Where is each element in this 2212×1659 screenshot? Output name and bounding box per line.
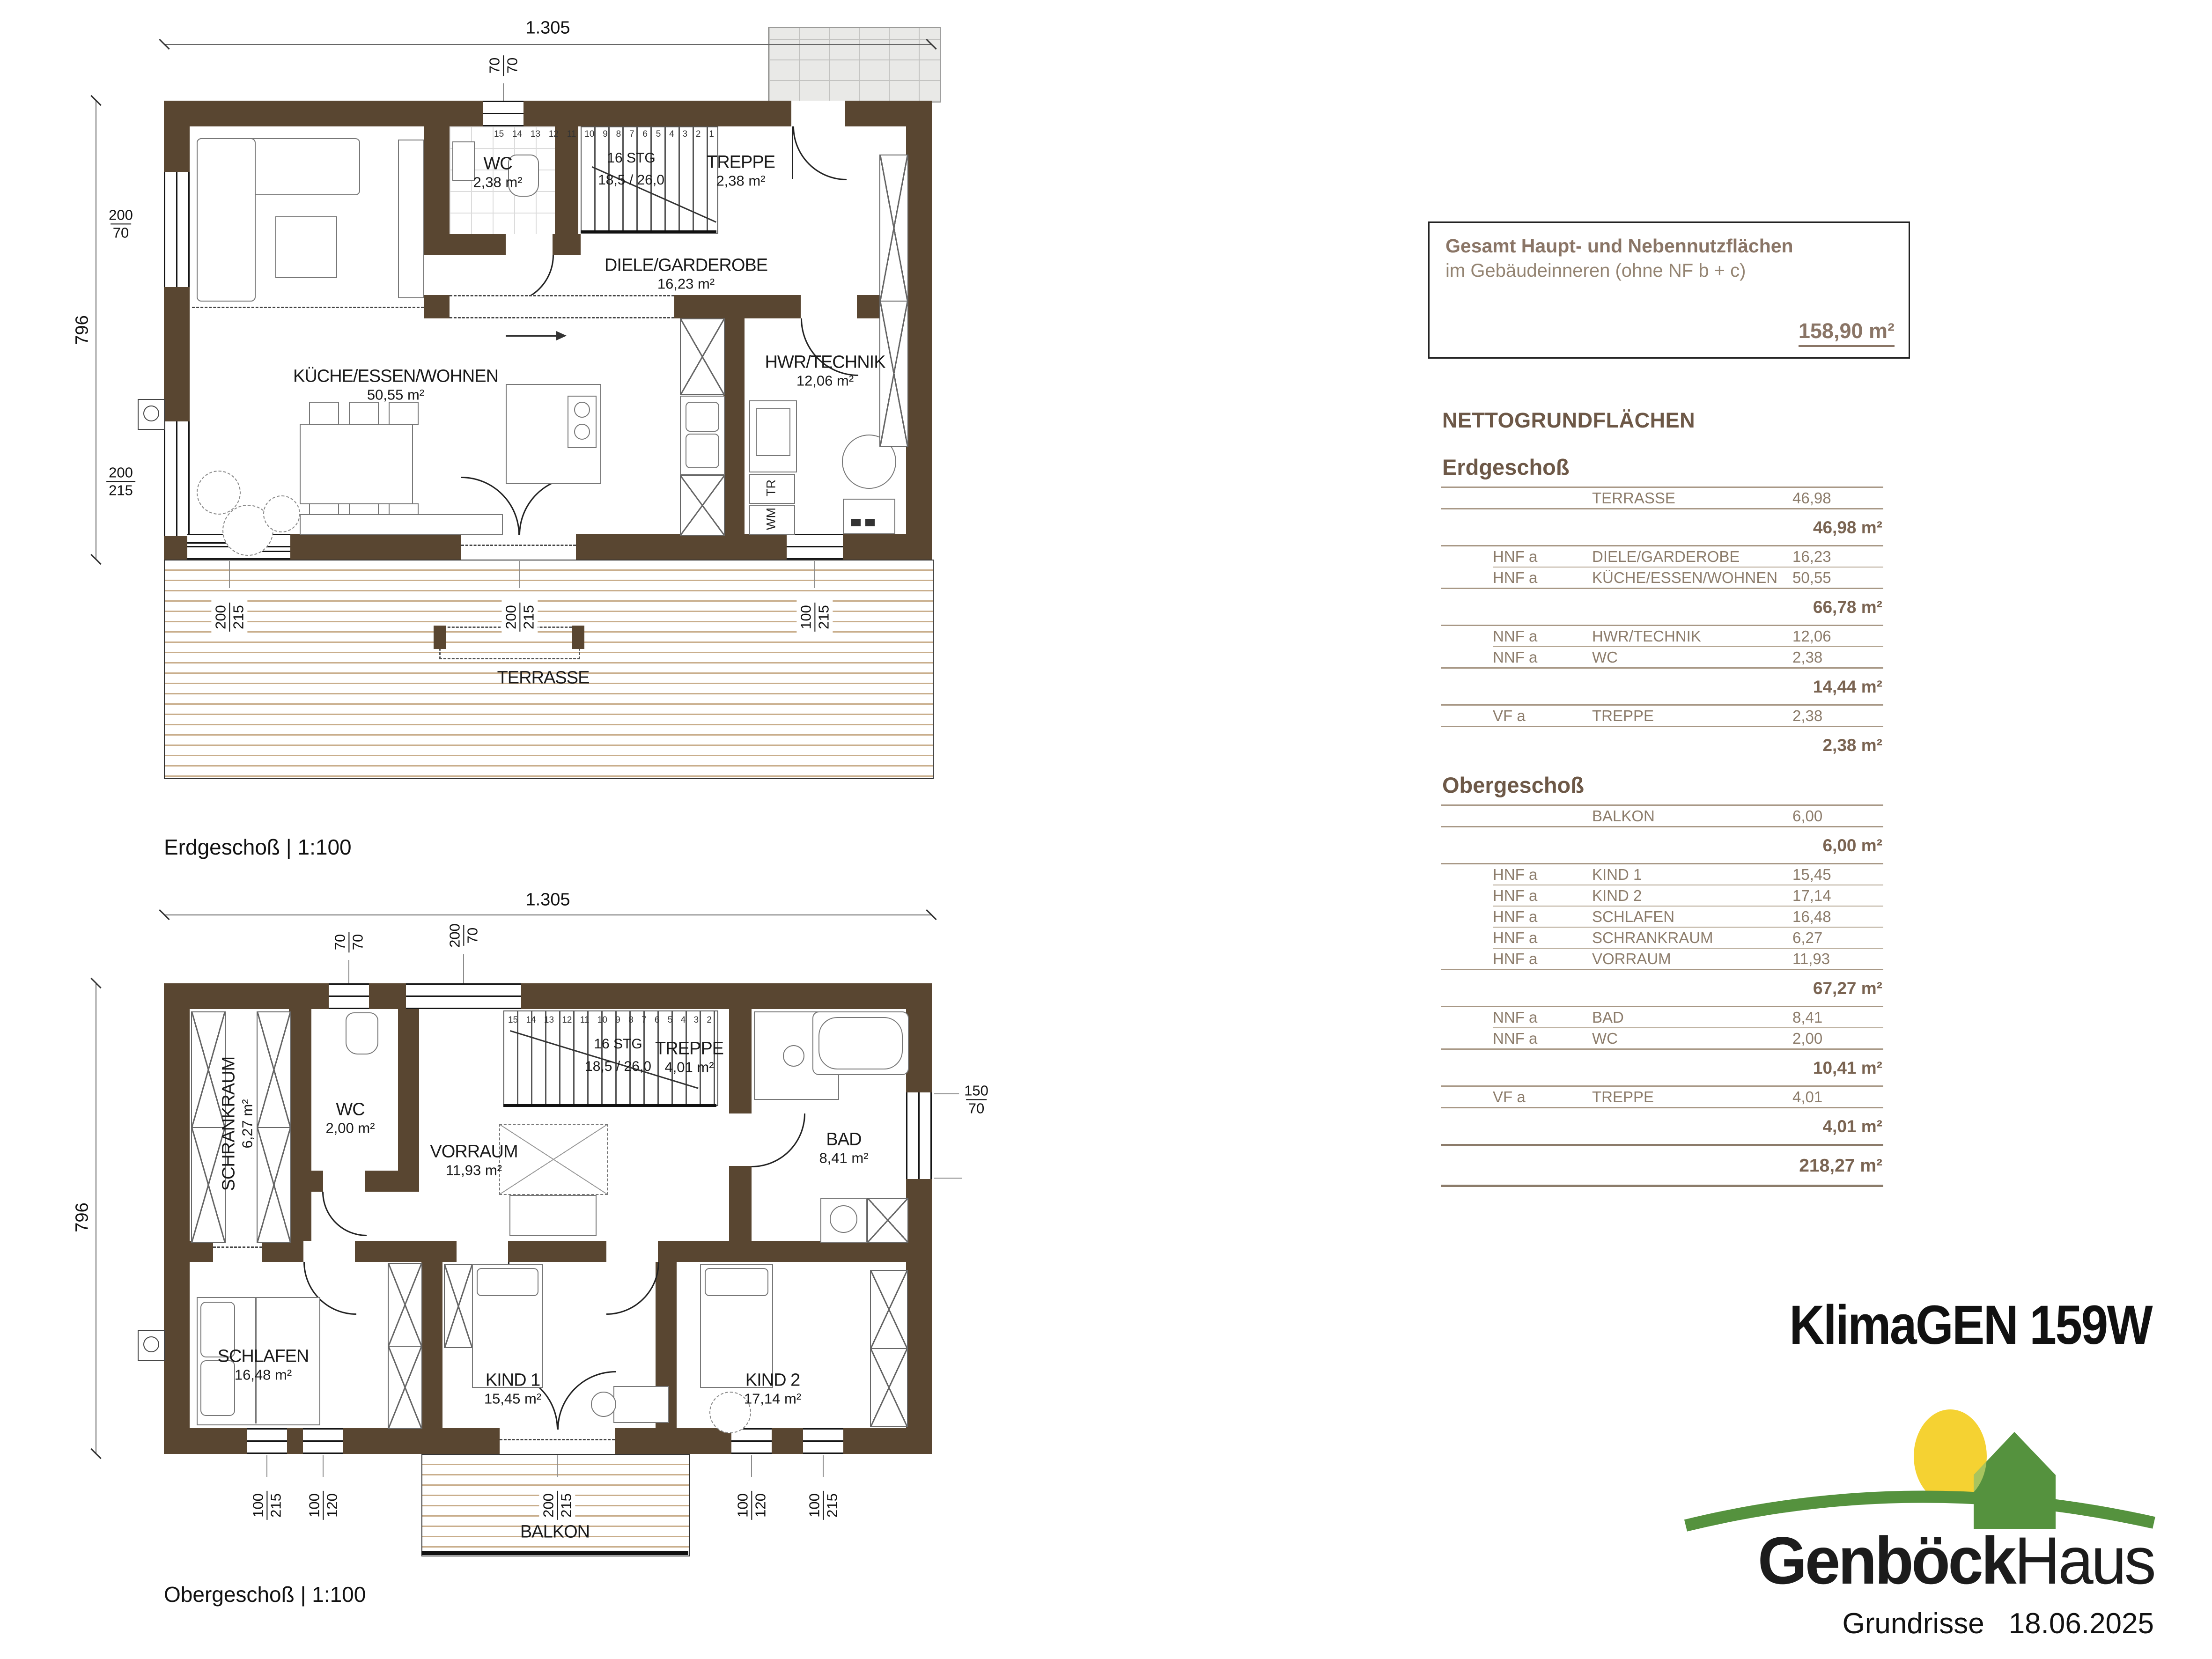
row-category: HNF a <box>1493 864 1592 885</box>
vent <box>851 519 861 526</box>
summary-subtitle: im Gebäudeinneren (ohne NF b + c) <box>1445 260 1746 281</box>
chair <box>309 402 339 425</box>
chest <box>509 1195 597 1236</box>
terrace-post <box>434 626 446 649</box>
room-label-kueche: KÜCHE/ESSEN/WOHNEN50,55 m² <box>293 367 498 404</box>
table-row: VF aTREPPE2,38 <box>1441 706 1883 726</box>
dim-leader <box>557 1455 558 1477</box>
entrance-door-leaf <box>792 126 793 179</box>
door-gap <box>729 1113 752 1166</box>
window <box>303 1428 343 1454</box>
window <box>329 983 369 1009</box>
group-subtotal: 14,44 m² <box>1441 669 1883 704</box>
row-value: 2,00 <box>1792 1028 1883 1048</box>
group-subtotal: 10,41 m² <box>1441 1050 1883 1085</box>
room-label-schrankraum: SCHRANKRAUM6,27 m² <box>219 1057 256 1191</box>
row-indent <box>1441 568 1493 588</box>
row-indent <box>1441 806 1493 826</box>
room-label-treppe: TREPPE2,38 m² <box>707 153 775 190</box>
row-value: 6,27 <box>1792 928 1883 948</box>
table-row: HNF aKIND 115,45 <box>1441 864 1883 885</box>
row-room: KÜCHE/ESSEN/WOHNEN <box>1592 568 1792 588</box>
desk <box>613 1386 669 1423</box>
group-subtotal: 66,78 m² <box>1441 589 1883 625</box>
pillow <box>477 1268 538 1296</box>
balcony-rail <box>421 1551 688 1555</box>
floor-caption-eg: Erdgeschoß | 1:100 <box>164 834 352 860</box>
stair-step-number: 13 <box>531 129 540 140</box>
row-indent <box>1441 488 1493 508</box>
doc-line: Grundrisse 18.06.2025 <box>1648 1607 2154 1640</box>
dim-leader <box>934 1178 962 1179</box>
grand-total: 218,27 m² <box>1441 1146 1883 1185</box>
table-row: NNF aWC2,00 <box>1441 1028 1883 1048</box>
toilet <box>346 1012 378 1054</box>
wall-segment <box>674 295 801 318</box>
table-row: TERRASSE46,98 <box>1441 488 1883 508</box>
dim-height: 796 <box>73 1196 93 1239</box>
row-category: VF a <box>1493 1087 1592 1107</box>
lintel-dashed <box>213 1246 262 1248</box>
table-row: NNF aBAD8,41 <box>1441 1007 1883 1027</box>
tech-unit <box>843 499 895 534</box>
window <box>164 421 190 536</box>
room-label-kind2: KIND 217,14 m² <box>744 1371 801 1408</box>
door-gap <box>213 1241 262 1262</box>
areas-table-body: ErdgeschoßTERRASSE46,9846,98 m²HNF aDIEL… <box>1441 454 1883 1187</box>
stair-step-number: 14 <box>512 129 522 140</box>
dim-line <box>96 983 96 1454</box>
row-value: 4,01 <box>1792 1087 1883 1107</box>
obergeschoss-plan: 15141312111098765432 <box>0 890 1030 1659</box>
beam-dashed <box>192 307 424 308</box>
summary-total: 158,90 m² <box>1799 319 1895 347</box>
wardrobe <box>388 1263 422 1347</box>
row-category: HNF a <box>1493 568 1592 588</box>
areas-section-heading: Erdgeschoß <box>1442 454 1883 480</box>
wall-segment <box>723 318 745 534</box>
logo-hill <box>1686 1497 2154 1526</box>
stair-step-numbers: 15141312111098765432 <box>508 1015 712 1025</box>
lintel-dashed <box>450 295 674 296</box>
dim-window: 15070 <box>959 1081 994 1117</box>
table-row: NNF aWC2,38 <box>1441 647 1883 667</box>
stair-step-number: 15 <box>508 1015 518 1025</box>
row-value: 15,45 <box>1792 864 1883 885</box>
areas-table-title: NETTOGRUNDFLÄCHEN <box>1442 408 1883 433</box>
stair-step-number: 13 <box>544 1015 554 1025</box>
row-indent <box>1441 626 1493 646</box>
stair-riser-label: 18,5 / 26,0 <box>598 172 664 188</box>
areas-table: NETTOGRUNDFLÄCHEN ErdgeschoßTERRASSE46,9… <box>1441 408 1883 1187</box>
kitchen-cabinet <box>680 318 725 395</box>
model-title: KlimaGEN 159W <box>1700 1293 2152 1357</box>
table-rule-thick <box>1441 1185 1883 1187</box>
door-gap <box>457 1241 508 1262</box>
row-indent <box>1441 949 1493 969</box>
row-category: NNF a <box>1493 626 1592 646</box>
hob-burner <box>574 424 590 440</box>
dim-window: 7070 <box>485 52 521 79</box>
vent <box>865 519 875 526</box>
row-category: NNF a <box>1493 1028 1592 1048</box>
table-row: HNF aKIND 217,14 <box>1441 885 1883 906</box>
wall-segment <box>658 1241 906 1262</box>
row-room: HWR/TECHNIK <box>1592 626 1792 646</box>
row-value: 16,48 <box>1792 907 1883 927</box>
balcony-label: BALKON <box>520 1522 590 1542</box>
row-value: 17,14 <box>1792 885 1883 906</box>
wardrobe <box>879 155 908 302</box>
terrace-label: TERRASSE <box>497 668 590 688</box>
pillow <box>705 1268 768 1296</box>
stair-step-number: 8 <box>628 1015 634 1025</box>
row-room: TERRASSE <box>1592 488 1792 508</box>
row-room: TREPPE <box>1592 1087 1792 1107</box>
row-value: 2,38 <box>1792 706 1883 726</box>
dining-table <box>300 424 413 504</box>
wc-sink <box>452 141 475 181</box>
row-room: SCHLAFEN <box>1592 907 1792 927</box>
terrace-post <box>572 626 584 649</box>
dim-leader <box>323 1455 324 1477</box>
room-label-diele: DIELE/GARDEROBE16,23 m² <box>605 256 767 293</box>
stair-step-number: 6 <box>655 1015 660 1025</box>
tv-sideboard <box>300 514 503 535</box>
dryer-label: TR <box>764 479 779 496</box>
dim-line <box>164 914 932 915</box>
open-passage <box>450 295 674 318</box>
dim-leader <box>229 561 230 588</box>
wall-segment <box>421 1262 442 1428</box>
dim-line <box>96 101 96 560</box>
stair-step-number: 15 <box>494 129 504 140</box>
dim-width: 1.305 <box>519 18 576 38</box>
flow-arrow <box>506 335 557 337</box>
group-subtotal: 67,27 m² <box>1441 970 1883 1006</box>
entrance-door-gap <box>791 101 845 126</box>
row-value: 2,38 <box>1792 647 1883 667</box>
stair-step-number: 11 <box>567 129 576 140</box>
wall-segment <box>164 983 190 1454</box>
table-row: VF aTREPPE4,01 <box>1441 1087 1883 1107</box>
door-sill <box>461 545 576 546</box>
coffee-table <box>275 216 337 278</box>
row-indent <box>1441 885 1493 906</box>
door-arc <box>606 1262 659 1315</box>
stair-rail <box>581 230 716 233</box>
plant <box>197 471 241 515</box>
row-category: VF a <box>1493 706 1592 726</box>
dim-leader <box>503 83 504 101</box>
door-arc <box>752 1113 805 1167</box>
flow-arrow-head <box>556 331 567 340</box>
dim-opening: 100120 <box>305 1488 341 1523</box>
dim-line <box>164 44 932 45</box>
wall-segment <box>729 1009 752 1113</box>
window <box>483 101 524 126</box>
wardrobe <box>388 1346 422 1429</box>
group-subtotal: 2,38 m² <box>1441 727 1883 763</box>
row-value: 46,98 <box>1792 488 1883 508</box>
dim-leader <box>348 960 349 983</box>
row-indent <box>1441 706 1493 726</box>
table-row: HNF aKÜCHE/ESSEN/WOHNEN50,55 <box>1441 568 1883 588</box>
closet <box>257 1011 291 1128</box>
group-subtotal: 4,01 m² <box>1441 1108 1883 1144</box>
summary-box: Gesamt Haupt- und Nebennutzflächen im Ge… <box>1428 221 1910 359</box>
wardrobe <box>870 1270 908 1349</box>
stair-riser-label: 18,5 / 26,0 <box>585 1059 651 1075</box>
wall-segment <box>365 1171 398 1192</box>
row-room: KIND 2 <box>1592 885 1792 906</box>
table-row: NNF aHWR/TECHNIK12,06 <box>1441 626 1883 646</box>
stair-step-number: 7 <box>629 129 634 140</box>
terrace-door <box>787 534 843 560</box>
sink-bowl <box>686 434 719 468</box>
dim-leader <box>814 561 815 588</box>
row-value: 12,06 <box>1792 626 1883 646</box>
brand-bold: Genböck <box>1758 1524 2014 1598</box>
bathtub-inner <box>818 1017 903 1069</box>
row-room: BAD <box>1592 1007 1792 1027</box>
room-label-treppe: TREPPE4,01 m² <box>655 1039 723 1076</box>
row-category: HNF a <box>1493 928 1592 948</box>
row-category: HNF a <box>1493 949 1592 969</box>
row-indent <box>1441 647 1493 667</box>
window <box>164 172 190 287</box>
dim-opening: 100120 <box>733 1488 769 1523</box>
stair-step-number: 2 <box>696 129 701 140</box>
stair-step-number: 6 <box>642 129 648 140</box>
lintel-dashed <box>450 317 674 318</box>
wall-segment <box>906 101 932 560</box>
dim-window: 7070 <box>331 929 367 955</box>
table-row: HNF aSCHRANKRAUM6,27 <box>1441 928 1883 948</box>
door-gap <box>303 1241 355 1262</box>
chair <box>591 1392 616 1417</box>
room-label-kind1: KIND 115,45 m² <box>484 1371 541 1408</box>
brand-light: Haus <box>2014 1524 2154 1598</box>
room-label-bad: BAD8,41 m² <box>819 1130 868 1167</box>
bath-sink-bowl <box>830 1205 857 1233</box>
hwr-door-gap <box>801 295 857 318</box>
summary-title: Gesamt Haupt- und Nebennutzflächen <box>1445 235 1793 257</box>
stair-step-number: 9 <box>615 1015 620 1025</box>
entrance-paving <box>768 27 941 103</box>
stair-step-numbers: 151413121110987654321 <box>494 129 714 140</box>
stair-step-number: 7 <box>641 1015 647 1025</box>
row-indent <box>1441 1028 1493 1048</box>
row-room: SCHRANKRAUM <box>1592 928 1792 948</box>
door-gap <box>606 1241 658 1262</box>
row-room: BALKON <box>1592 806 1792 826</box>
doc-type: Grundrisse <box>1842 1607 1984 1640</box>
stair-step-number: 1 <box>709 129 714 140</box>
dim-opening: 200215 <box>211 600 247 634</box>
table-row: BALKON6,00 <box>1441 806 1883 826</box>
stair-step-number: 11 <box>580 1015 590 1025</box>
dim-opening: 100215 <box>796 600 833 634</box>
wardrobe <box>870 1348 908 1427</box>
hwr-sink-bowl <box>756 408 790 456</box>
row-value: 8,41 <box>1792 1007 1883 1027</box>
stair-stg-label: 16 STG <box>594 1036 642 1052</box>
floor-caption-og: Obergeschoß | 1:100 <box>164 1582 366 1607</box>
dim-window: 20070 <box>445 918 481 953</box>
closet <box>257 1127 291 1243</box>
wardrobe <box>444 1264 473 1348</box>
window <box>406 983 521 1009</box>
room-label-schlafen: SCHLAFEN16,48 m² <box>218 1347 309 1384</box>
row-value: 50,55 <box>1792 568 1883 588</box>
dim-opening: 100215 <box>249 1488 285 1523</box>
row-indent <box>1441 1007 1493 1027</box>
group-subtotal: 46,98 m² <box>1441 509 1883 545</box>
chimney-flue <box>143 406 159 421</box>
stair-step-number: 5 <box>668 1015 673 1025</box>
stair-step-number: 10 <box>584 129 594 140</box>
row-indent <box>1441 546 1493 567</box>
row-room: WC <box>1592 1028 1792 1048</box>
stair-step-number: 12 <box>549 129 559 140</box>
wall-segment <box>164 983 932 1009</box>
window <box>247 1428 287 1454</box>
row-indent <box>1441 907 1493 927</box>
stair-stg-label: 16 STG <box>607 150 655 166</box>
sideboard <box>398 140 424 298</box>
group-subtotal: 6,00 m² <box>1441 827 1883 863</box>
table-row: HNF aSCHLAFEN16,48 <box>1441 907 1883 927</box>
dim-leader <box>519 561 520 588</box>
plant <box>263 495 300 532</box>
wall-segment <box>424 295 450 318</box>
chimney-flue <box>143 1336 159 1352</box>
row-category: HNF a <box>1493 546 1592 567</box>
chair <box>389 402 419 425</box>
row-room: DIELE/GARDEROBE <box>1592 546 1792 567</box>
stair-step-number: 5 <box>656 129 661 140</box>
sink-bowl <box>686 402 719 432</box>
stair-step-number: 14 <box>526 1015 536 1025</box>
wall-segment <box>398 1009 419 1192</box>
dim-leader <box>751 1455 752 1477</box>
wc-door-gap <box>506 234 553 255</box>
wall-segment <box>906 983 932 1454</box>
stair-step-number: 9 <box>603 129 608 140</box>
room-label-hwr: HWR/TECHNIK12,06 m² <box>765 353 885 390</box>
room-label-wc: WC2,38 m² <box>473 154 522 191</box>
balcony-door-gap <box>500 1428 615 1454</box>
stair-step-number: 10 <box>597 1015 607 1025</box>
door-arc <box>322 1192 367 1236</box>
wall-segment <box>262 1241 303 1262</box>
window <box>803 1428 843 1454</box>
shower-head <box>783 1045 804 1067</box>
dim-opening: 100215 <box>805 1488 841 1523</box>
door-arc <box>519 477 577 535</box>
stair-step-number: 3 <box>682 129 687 140</box>
stair-step-number: 4 <box>669 129 674 140</box>
stair-step-number: 12 <box>562 1015 572 1025</box>
row-room: WC <box>1592 647 1792 667</box>
row-value: 16,23 <box>1792 546 1883 567</box>
doc-date: 18.06.2025 <box>2009 1607 2154 1640</box>
chair <box>349 402 379 425</box>
stair-rail <box>503 1104 716 1107</box>
window <box>906 1092 932 1179</box>
room-label-vorraum: VORRAUM11,93 m² <box>430 1142 517 1179</box>
room-label-wc: WC2,00 m² <box>325 1100 375 1137</box>
erdgeschoss-plan: 151413121110987654321 <box>0 0 1030 890</box>
door-sill <box>500 1439 615 1440</box>
wall-segment <box>555 126 578 234</box>
dim-leader <box>823 1455 824 1477</box>
dim-opening: 200215 <box>539 1488 575 1523</box>
row-indent <box>1441 1087 1493 1107</box>
wall-segment <box>190 1241 213 1262</box>
row-category <box>1493 488 1592 508</box>
washer-label: WM <box>764 508 779 530</box>
row-category: NNF a <box>1493 1007 1592 1027</box>
row-room: KIND 1 <box>1592 864 1792 885</box>
row-category <box>1493 806 1592 826</box>
wall-segment <box>729 1166 752 1241</box>
hob-burner <box>574 402 590 418</box>
row-value: 11,93 <box>1792 949 1883 969</box>
bath-cabinet <box>867 1198 908 1243</box>
stair-step-number: 2 <box>707 1015 712 1025</box>
dim-window: 20070 <box>103 206 138 242</box>
wall-segment <box>311 1171 323 1192</box>
row-room: VORRAUM <box>1592 949 1792 969</box>
stair-step-number: 4 <box>681 1015 686 1025</box>
row-category: HNF a <box>1493 885 1592 906</box>
entrance-door-arc <box>793 126 847 180</box>
dim-width: 1.305 <box>519 890 576 910</box>
wall-segment <box>553 234 581 255</box>
dim-window: 200215 <box>103 463 138 499</box>
french-door-gap <box>461 534 576 560</box>
floorplan-sheet: 151413121110987654321 <box>0 0 2212 1659</box>
dim-leader <box>463 954 464 983</box>
row-indent <box>1441 864 1493 885</box>
wall-segment <box>355 1241 457 1262</box>
dim-leader <box>266 1455 267 1477</box>
row-room: TREPPE <box>1592 706 1792 726</box>
row-category: HNF a <box>1493 907 1592 927</box>
wall-segment <box>424 234 506 255</box>
stair-step-number: 3 <box>693 1015 699 1025</box>
areas-section-heading: Obergeschoß <box>1442 772 1883 798</box>
brand-wordmark: GenböckHaus <box>1674 1523 2154 1600</box>
row-value: 6,00 <box>1792 806 1883 826</box>
wall-segment <box>289 1009 311 1241</box>
row-category: NNF a <box>1493 647 1592 667</box>
dim-opening: 200215 <box>501 600 538 634</box>
door-gap <box>323 1171 365 1192</box>
stair-step-number: 8 <box>616 129 621 140</box>
wall-segment <box>508 1241 606 1262</box>
row-indent <box>1441 928 1493 948</box>
dim-leader <box>934 1093 962 1094</box>
sofa <box>197 138 256 302</box>
kitchen-cabinet <box>680 475 725 536</box>
table-row: HNF aVORRAUM11,93 <box>1441 949 1883 969</box>
table-row: HNF aDIELE/GARDEROBE16,23 <box>1441 546 1883 567</box>
dim-height: 796 <box>73 309 93 351</box>
